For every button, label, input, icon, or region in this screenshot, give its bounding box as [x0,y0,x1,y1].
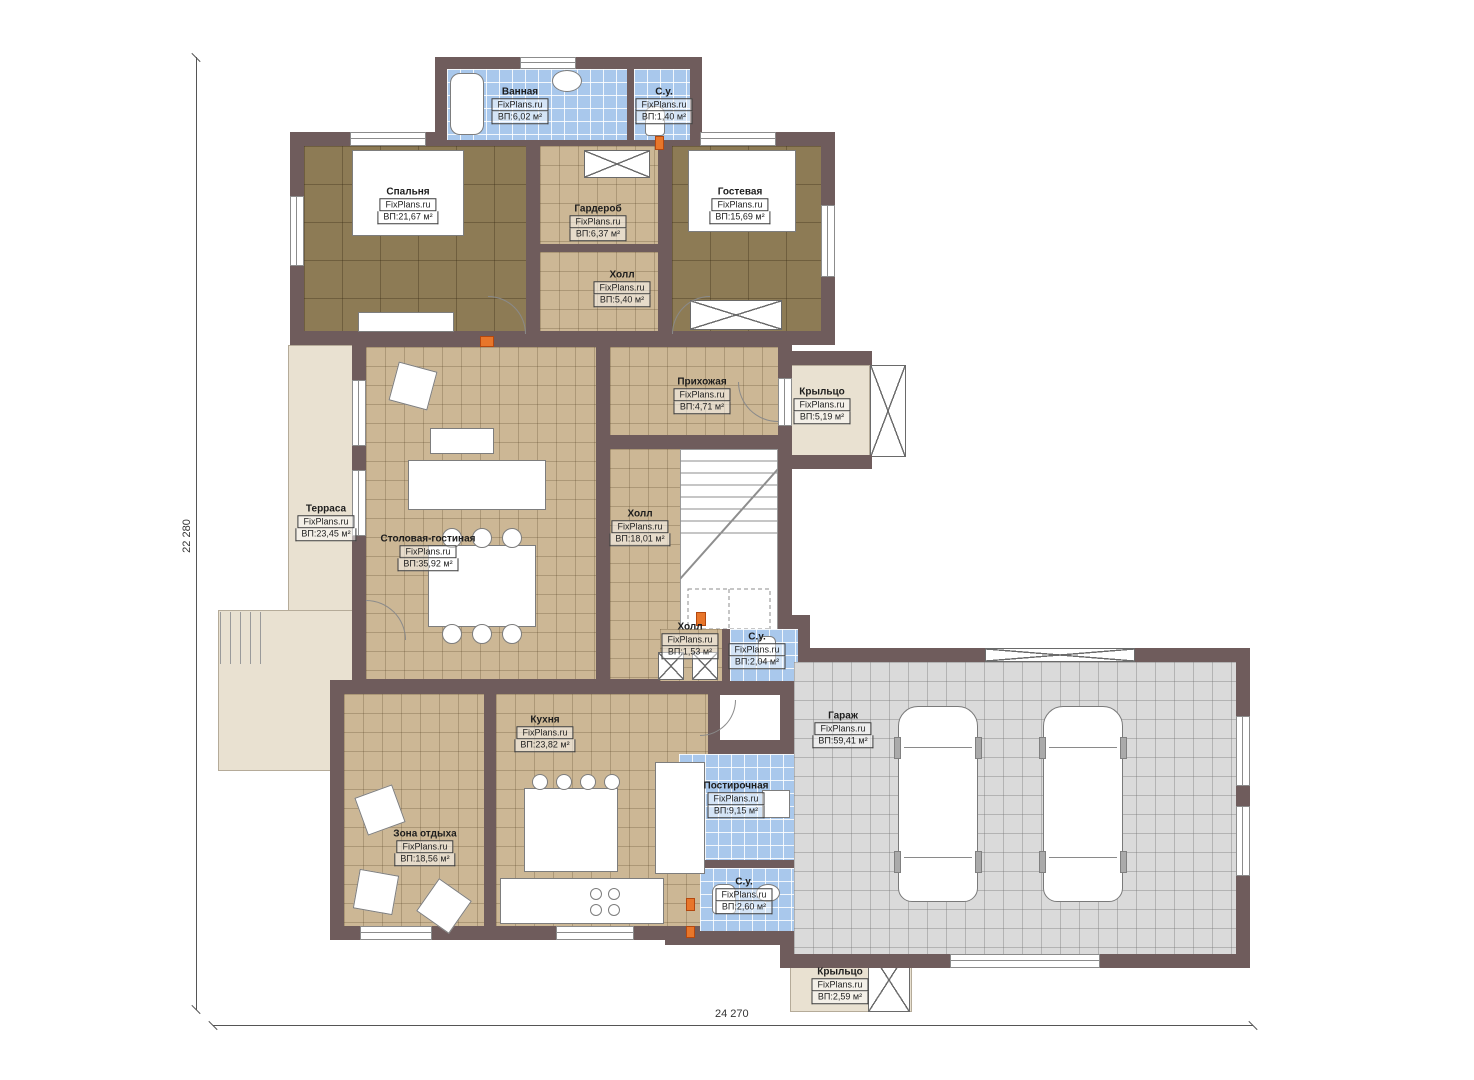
window [950,954,1100,968]
door-marker [696,612,706,626]
chair [442,624,462,644]
chair [442,528,462,548]
door-marker [686,898,695,911]
bar-stool [580,774,596,790]
toilet [645,106,665,136]
window [700,132,776,146]
window [360,926,432,940]
coffee-table [430,428,494,454]
stove-burner [590,888,602,900]
armchair [353,869,399,915]
wall [526,146,540,331]
entry-door-opening [778,378,792,426]
garage-door [985,648,1135,662]
chair [472,528,492,548]
dimension-line-horizontal [213,1025,1253,1026]
porch-steps [870,365,906,457]
window [352,380,366,446]
wall [540,244,658,252]
wall [780,351,872,365]
wall [484,694,496,926]
door-marker [686,926,695,938]
floor-porch-right [780,365,870,457]
stove-burner [590,904,602,916]
door-swing [700,700,736,736]
dining-table [428,545,536,627]
wall [610,435,778,449]
floor-plan: 22 280 24 270 [0,0,1474,1080]
chair [502,624,522,644]
closet [692,652,718,680]
dimension-line-vertical [196,57,197,1010]
bed [352,150,464,236]
dimension-height-label: 22 280 [181,519,193,553]
window [1236,806,1250,876]
chair [502,528,522,548]
kitchen-cabinet [655,762,705,874]
stove-burner [608,888,620,900]
window [556,926,634,940]
floor-terrace [288,345,354,611]
wall [722,629,730,681]
bed [688,150,796,232]
door-marker [655,136,664,150]
floor-garage [794,662,1236,954]
stove-burner [608,904,620,916]
dimension-width-label: 24 270 [715,1008,749,1020]
sink [552,70,582,92]
bar-stool [604,774,620,790]
chair [472,624,492,644]
window [1236,716,1250,786]
closet [584,150,650,178]
bathtub [450,73,484,135]
bar-stool [556,774,572,790]
floor-hall-top [540,252,658,331]
kitchen-counter [500,878,664,924]
kitchen-island [524,788,618,872]
wall [627,69,634,140]
wall [596,347,610,679]
wall [780,455,872,469]
toilet [758,636,776,662]
window [350,132,426,146]
wall [658,146,672,331]
window [520,57,576,69]
window [821,205,835,277]
sofa [408,460,546,510]
bar-stool [532,774,548,790]
dresser [358,312,454,332]
sink [756,884,780,902]
washing-machine [762,790,790,818]
terrace-steps [220,612,262,664]
window [290,196,304,266]
car [1043,706,1123,902]
closet [658,652,684,680]
window [352,470,366,536]
car [898,706,978,902]
fireplace [480,336,494,347]
toilet [712,884,736,914]
